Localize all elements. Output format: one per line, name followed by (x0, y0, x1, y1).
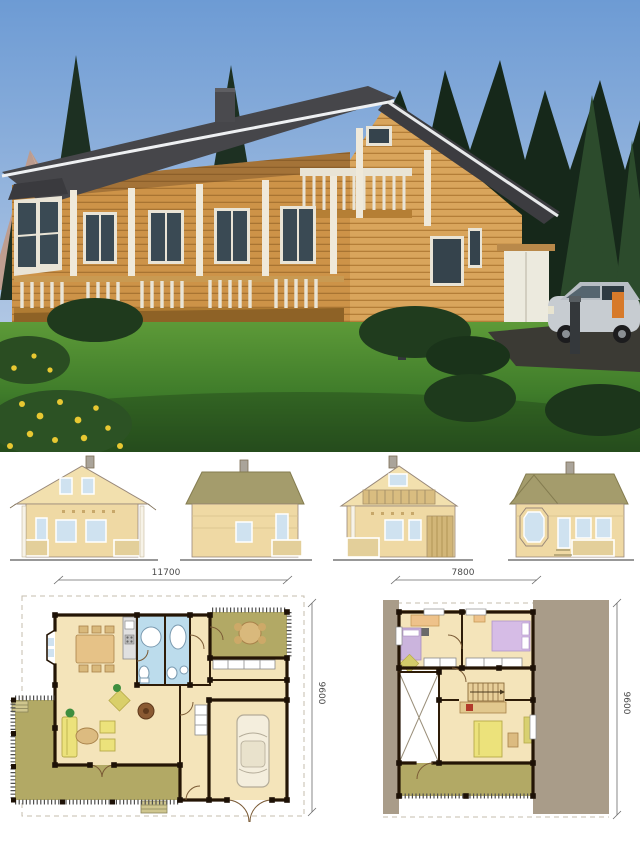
upper-balcony (399, 763, 533, 796)
elevation-side-bay (508, 462, 634, 560)
house-render-photo (0, 0, 640, 452)
lamp-bollard (569, 296, 581, 354)
roof-surface-right (533, 600, 609, 814)
dimension-ground-depth: 9600 (308, 599, 326, 816)
plan-bay-window (47, 630, 55, 665)
elevation-end-porch (10, 456, 158, 560)
elevation-drawings (0, 452, 640, 565)
dimension-upper-width: 7800 (391, 568, 541, 584)
entry-shelves (195, 705, 207, 735)
kitchen-counter (123, 617, 136, 659)
upper-floor-plan: 9600 (383, 599, 631, 819)
ground-floor-plan: 9600 (11, 596, 326, 822)
elevation-side-rear (180, 460, 312, 560)
dim-label-upper-depth: 9600 (621, 692, 631, 715)
bay-window-elev (520, 508, 548, 546)
dimension-upper-depth: 9600 (613, 599, 631, 819)
chimney (215, 88, 235, 122)
plan-car (237, 715, 269, 787)
garage-door-elev (427, 516, 453, 557)
plant (113, 684, 121, 692)
dim-label-upper-width: 7800 (452, 568, 475, 578)
plant (66, 709, 75, 718)
bay-window (8, 178, 68, 276)
balcony-band (363, 490, 435, 504)
closet-row (213, 660, 275, 669)
elevation-front-garage (333, 456, 473, 560)
stairs (468, 683, 505, 701)
dim-label-ground-width: 11700 (152, 568, 181, 578)
floor-plans: 11700 7800 (0, 565, 640, 857)
brochure-page: 11700 7800 (0, 0, 640, 857)
terrace-table (234, 622, 266, 644)
dim-label-ground-depth: 9600 (316, 682, 326, 705)
dimension-ground-width: 11700 (54, 568, 292, 584)
dining-set (76, 626, 114, 672)
